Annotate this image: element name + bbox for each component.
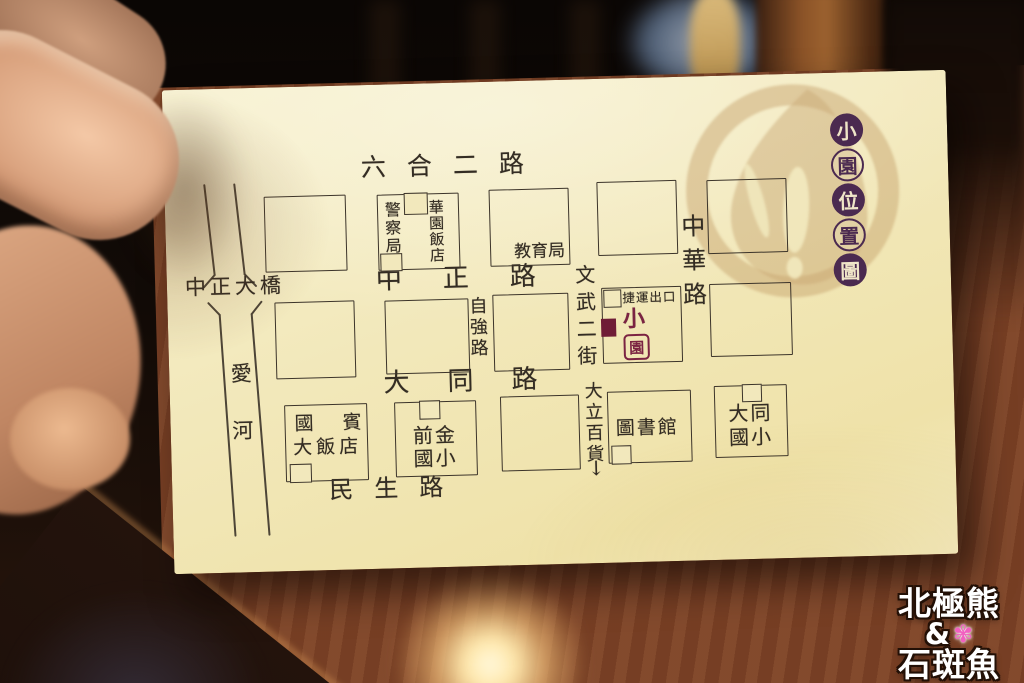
qianjin-school-line1: 前金 (413, 425, 458, 447)
block-notch (380, 253, 402, 272)
map-block-ambassador-hotel: 國賓 大飯店 (284, 403, 369, 482)
dali-dept-label: 大立百貨 (582, 381, 603, 465)
business-card: 小 園 位 置 圖 六合二路 中正路 大同路 民生路 中正大橋 中華路 文武二街… (162, 70, 958, 574)
map-block-library: 圖書館 (607, 390, 693, 464)
photo-watermark-line3: 石斑魚 (878, 649, 1020, 681)
street-label-wenwu: 文武二街 (573, 264, 597, 373)
map-block (384, 298, 470, 374)
mrt-exit-notch (603, 289, 621, 307)
library-label: 圖書館 (616, 418, 680, 440)
huayuan-hotel-label: 華園飯店 (427, 199, 444, 263)
block-notch (404, 192, 429, 215)
bridge-label: 中正大橋 (185, 274, 286, 299)
police-label: 警察局 (382, 201, 400, 255)
mrt-exit-label: 捷運出口 (622, 290, 676, 305)
map-block-restaurant: 捷運出口 小 園 (601, 286, 683, 364)
map-block (706, 178, 788, 254)
map-block (492, 293, 570, 372)
dali-arrow-icon: ↓ (588, 458, 605, 479)
restaurant-label-char1: 小 (623, 308, 646, 332)
map-block (596, 180, 678, 256)
river-label: 愛河 (229, 362, 254, 477)
map-block (274, 300, 356, 379)
photo-scene: 小 園 位 置 圖 六合二路 中正路 大同路 民生路 中正大橋 中華路 文武二街… (0, 0, 1024, 683)
block-notch (611, 445, 631, 465)
block-notch (742, 384, 762, 403)
ambassador-hotel-line2: 大飯店 (293, 437, 363, 459)
map-block (264, 195, 348, 273)
map-block-police-hotel: 警察局 華園飯店 (377, 193, 461, 271)
map-block (709, 282, 793, 357)
ambassador-hotel-line1: 國賓 (294, 412, 391, 434)
map-block-education: 教育局 (489, 188, 571, 267)
map-block (500, 395, 581, 472)
photo-watermark: 北極熊 &✾ 石斑魚 (878, 588, 1020, 681)
block-notch (290, 464, 312, 484)
datong-school-line1: 大同 (728, 402, 773, 424)
block-notch (419, 400, 440, 420)
restaurant-label-char2-box: 園 (623, 334, 650, 361)
photo-watermark-line1: 北極熊 (878, 588, 1020, 620)
map-block-qianjin-school: 前金 國小 (394, 400, 478, 477)
datong-school-line2: 國小 (729, 426, 774, 448)
street-label-liuhe: 六合二路 (361, 150, 546, 181)
restaurant-marker (601, 319, 616, 337)
map-block-datong-school: 大同 國小 (714, 384, 789, 458)
restaurant-label-char2: 園 (629, 336, 645, 357)
qianjin-school-line2: 國小 (413, 448, 458, 470)
education-bureau-label: 教育局 (514, 243, 565, 262)
